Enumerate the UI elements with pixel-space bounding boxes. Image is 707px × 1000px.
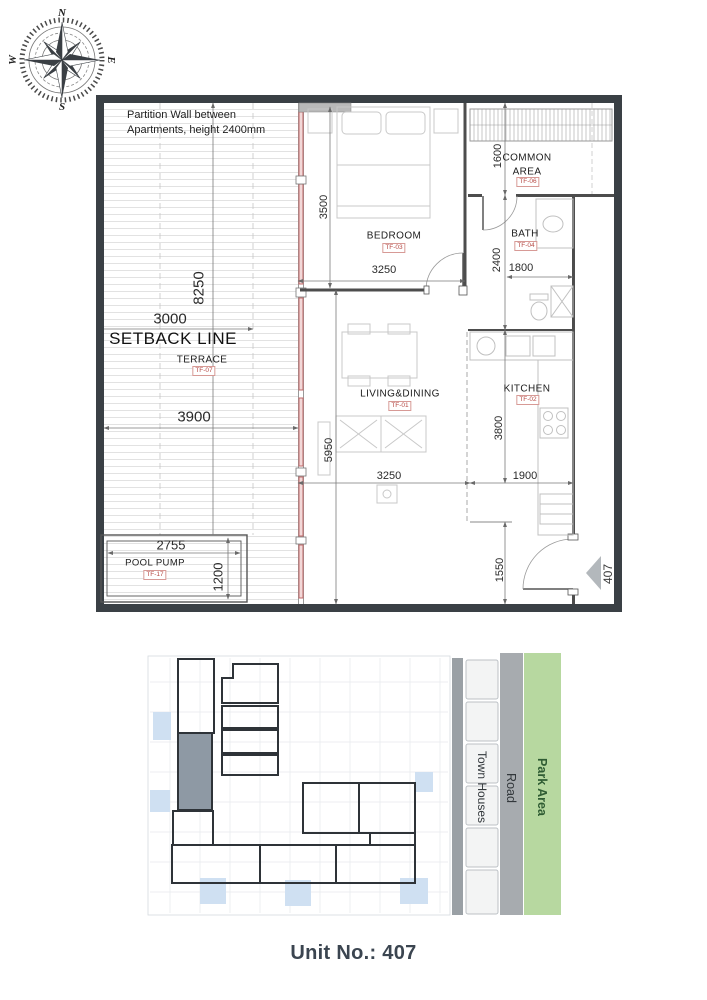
bath-fixtures [530, 199, 573, 320]
room-code-kitchen: TF-02 [516, 395, 539, 405]
highlighted-unit-407 [178, 733, 212, 810]
site-key-plan [148, 653, 561, 915]
park-area-label: Park Area [535, 758, 549, 816]
room-code-common-area: TF-06 [516, 177, 539, 187]
page-title: Unit No.: 407 [0, 942, 707, 965]
setback-line-label: SETBACK LINE [109, 329, 237, 349]
room-label-pool-pump: POOL PUMP [125, 558, 185, 569]
dim-terrace-length: 8250 [191, 271, 208, 304]
road-label: Road [504, 773, 518, 803]
room-label-bedroom: BEDROOM [367, 231, 421, 242]
floor-plan-sheet: N S W E Partition Wall between Apartment… [0, 0, 707, 1000]
compass-south-label: S [59, 101, 65, 113]
dim-bedroom-width: 3250 [372, 264, 396, 276]
room-code-living-dining: TF-01 [388, 401, 411, 411]
compass-rose-icon [22, 20, 102, 100]
room-label-bath: BATH [511, 229, 539, 240]
room-label-common-area: COMMON AREA [498, 152, 556, 179]
dim-kitchen-depth: 3800 [493, 416, 505, 440]
dim-bath-depth: 2400 [491, 248, 503, 272]
dim-entry-depth: 1550 [494, 558, 506, 582]
entrance-arrow-icon [586, 556, 601, 590]
dim-bedroom-depth: 3500 [318, 195, 330, 219]
compass-north-label: N [58, 7, 66, 19]
compass-west-label: W [7, 55, 19, 65]
dim-bath-width: 1800 [509, 262, 533, 274]
room-code-bath: TF-04 [514, 241, 537, 251]
entrance-unit-number: 407 [601, 564, 615, 584]
glazed-partition-wall [296, 103, 351, 604]
dim-living-width: 3250 [377, 470, 401, 482]
dining-table-symbol [342, 324, 417, 386]
compass-east-label: E [105, 56, 117, 63]
room-code-bedroom: TF-03 [382, 243, 405, 253]
walkway-strip [452, 658, 463, 915]
dim-kitchen-width: 1900 [513, 470, 537, 482]
interior-walls [300, 103, 614, 604]
bed-symbol [308, 107, 458, 218]
room-label-kitchen: KITCHEN [504, 384, 551, 395]
plan-linework [0, 0, 707, 1000]
dim-setback-offset: 3000 [153, 311, 186, 328]
dim-living-depth: 5950 [323, 438, 335, 462]
dim-terrace-width: 3900 [177, 409, 210, 426]
room-code-terrace: TF-07 [192, 366, 215, 376]
wardrobe-symbol [470, 109, 612, 141]
dim-pool-pump-width: 2755 [157, 538, 186, 553]
town-houses-label: Town Houses [475, 751, 489, 823]
dim-pool-pump-depth: 1200 [211, 563, 226, 592]
dim-common-depth: 1600 [492, 144, 504, 168]
room-label-terrace: TERRACE [177, 355, 228, 366]
partition-wall-note: Partition Wall between Apartments, heigh… [127, 108, 279, 138]
kitchen-counter [470, 332, 573, 535]
room-label-living-dining: LIVING&DINING [360, 389, 440, 400]
room-code-pool-pump: TF-17 [143, 570, 166, 580]
